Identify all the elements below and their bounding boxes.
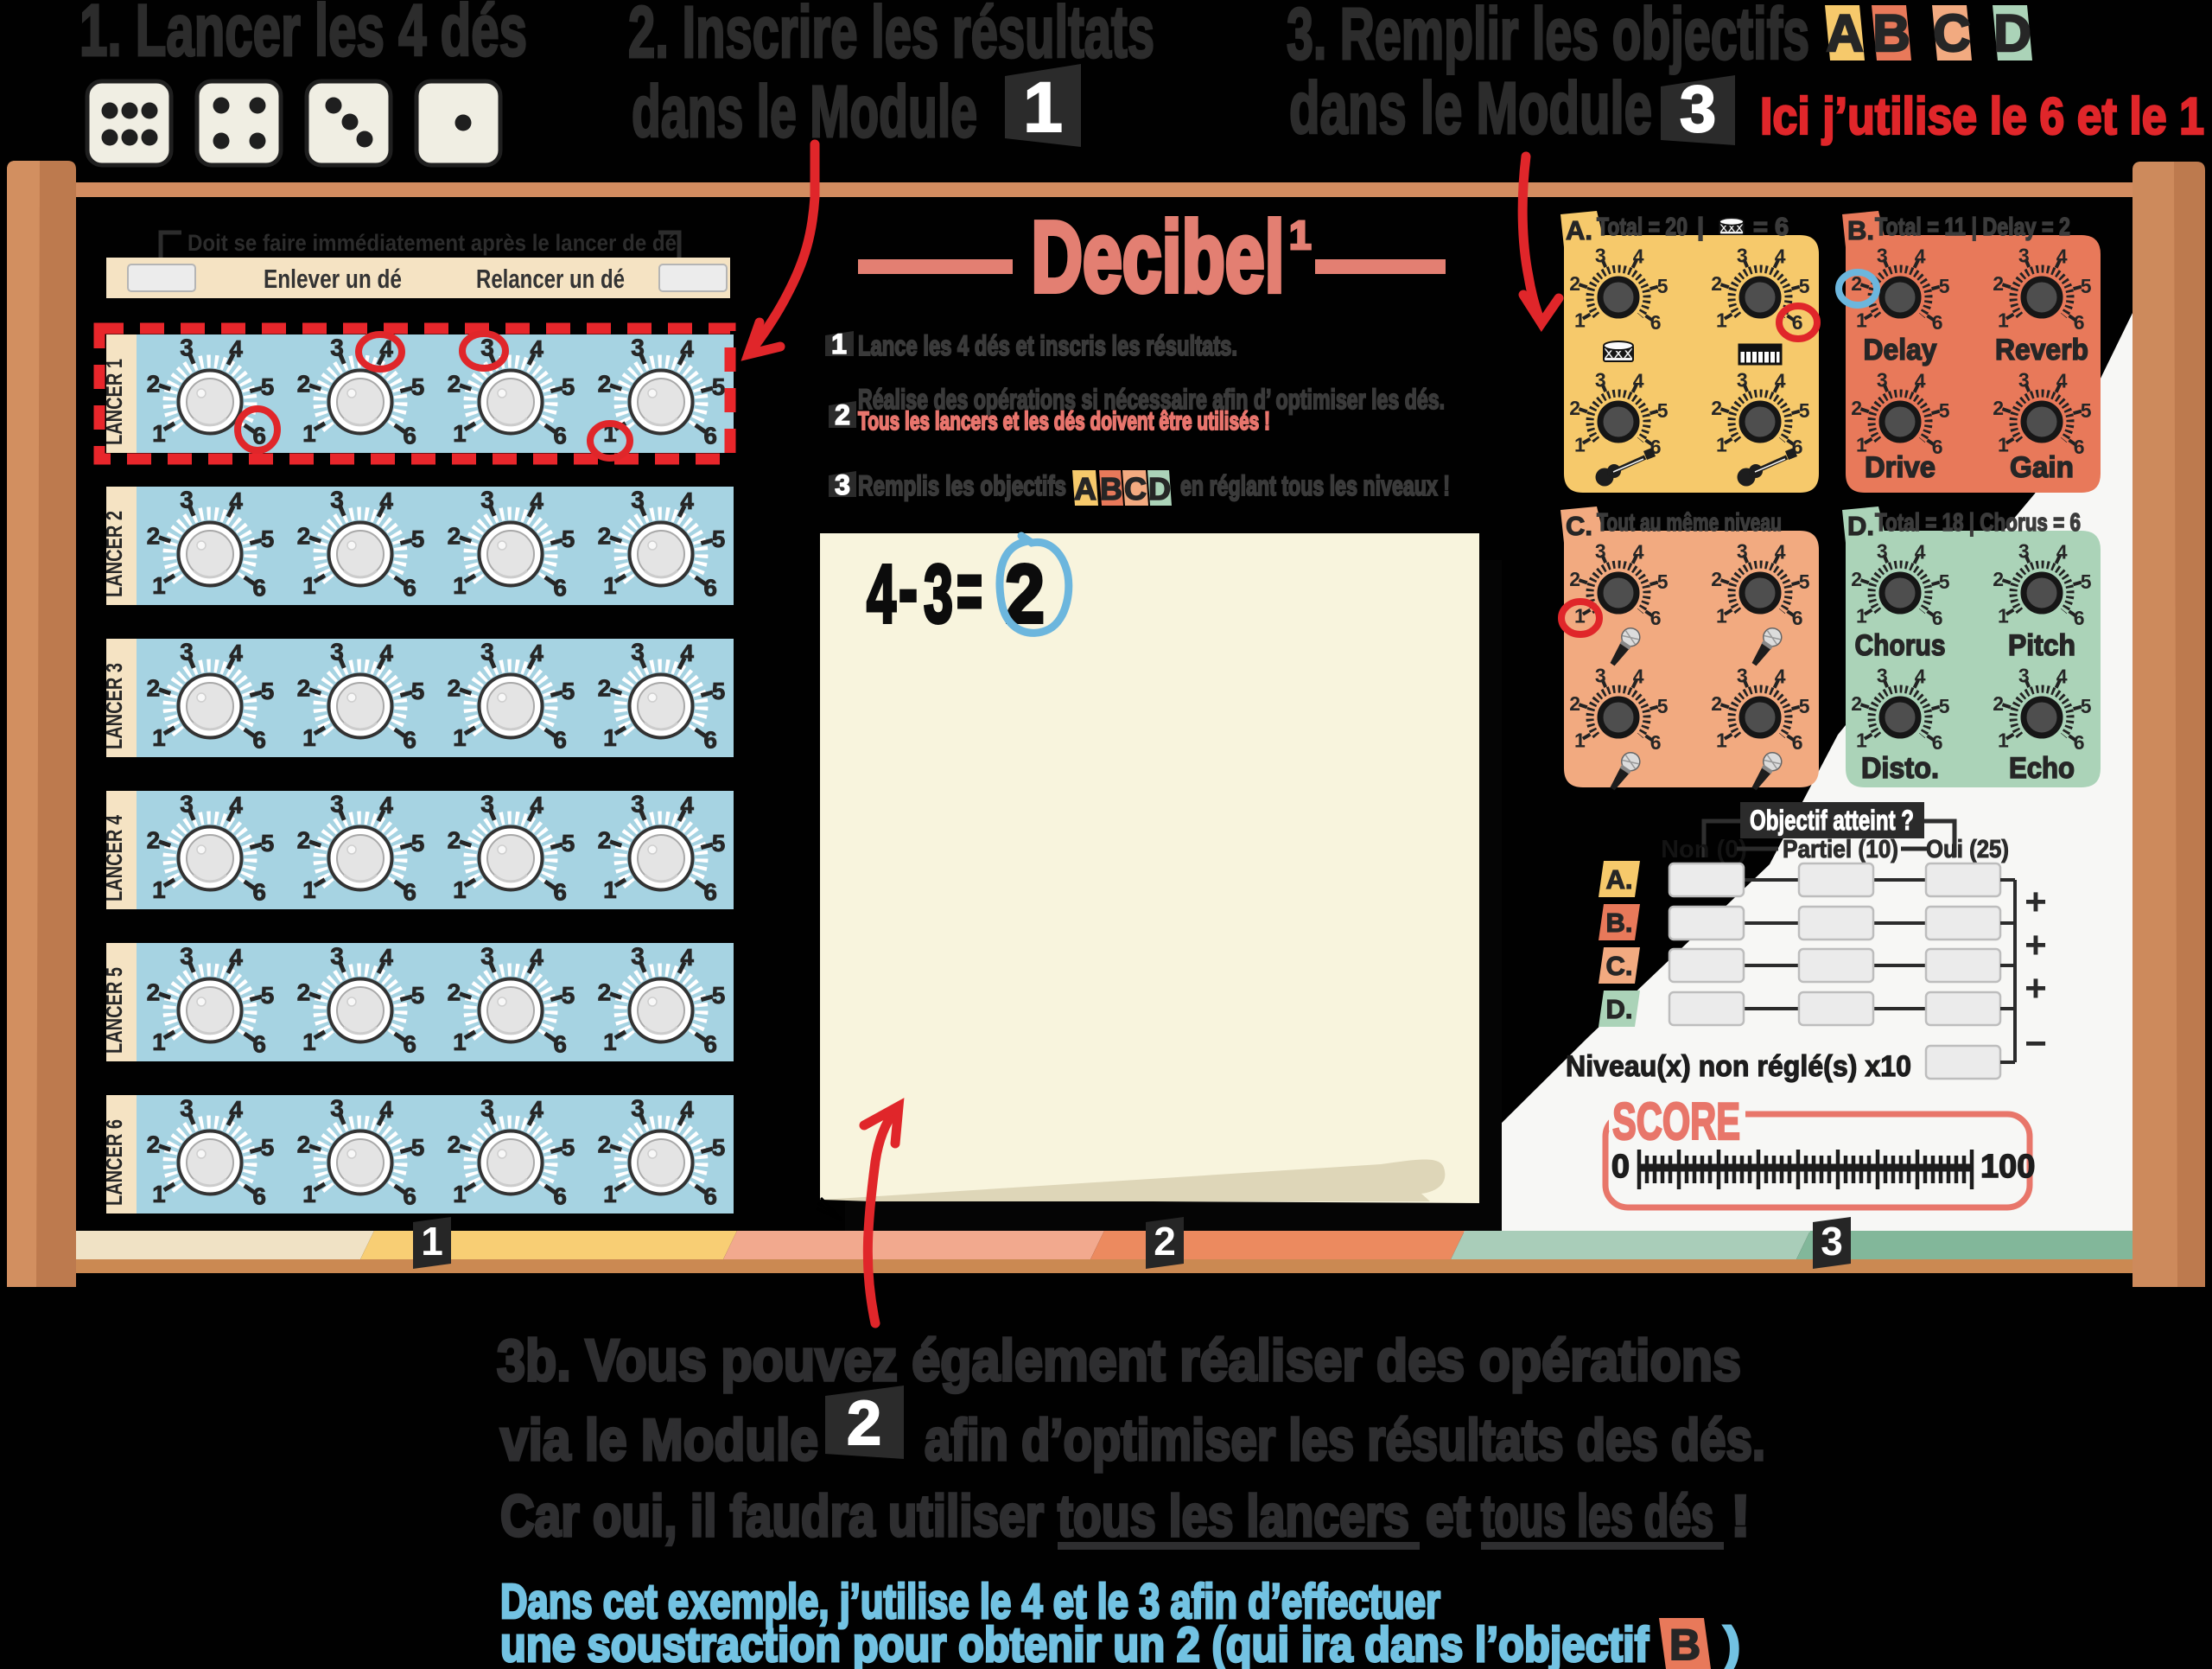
svg-text:tous les lancers: tous les lancers (1058, 1483, 1409, 1549)
svg-text:Niveau(x) non réglé(s) x10: Niveau(x) non réglé(s) x10 (1566, 1050, 1911, 1083)
svg-text:0: 0 (1611, 1149, 1630, 1185)
svg-text:B.: B. (1606, 908, 1633, 938)
svg-text:Total = 11 | Delay = 2: Total = 11 | Delay = 2 (1875, 213, 2070, 241)
svg-text:1: 1 (1289, 213, 1312, 258)
svg-text:1. Lancer les 4 dés: 1. Lancer les 4 dés (79, 0, 527, 71)
svg-text:B: B (1872, 4, 1910, 62)
svg-text:=: = (957, 545, 982, 637)
svg-text:C.: C. (1606, 951, 1633, 981)
svg-text:B: B (1100, 471, 1122, 506)
svg-text:et: et (1426, 1483, 1471, 1549)
svg-text:B.: B. (1847, 215, 1874, 245)
svg-text:en réglant tous les niveaux !: en réglant tous les niveaux ! (1180, 470, 1450, 501)
svg-text:Reverb: Reverb (1995, 334, 2088, 366)
svg-text:A: A (1826, 4, 1863, 62)
svg-text:Car oui, il faudra utiliser: Car oui, il faudra utiliser (500, 1483, 1044, 1549)
svg-text:2: 2 (1154, 1219, 1176, 1264)
svg-text:Tous les lancers et les dés do: Tous les lancers et les dés doivent être… (858, 407, 1270, 436)
svg-text:C: C (1124, 471, 1147, 506)
svg-text:Enlever un dé: Enlever un dé (264, 264, 402, 294)
svg-text:Gain: Gain (2010, 451, 2074, 484)
svg-text:C.: C. (1566, 511, 1592, 541)
svg-text:D: D (1993, 4, 2031, 62)
svg-text:Echo: Echo (2009, 752, 2075, 785)
svg-text:−: − (2024, 1022, 2047, 1065)
svg-text:3: 3 (1680, 73, 1716, 146)
svg-text:afin d’optimiser les résultats: afin d’optimiser les résultats des dés. (925, 1407, 1765, 1473)
svg-text:+: + (2024, 967, 2047, 1010)
svg-text:Ici j’utilise le 6 et le 1: Ici j’utilise le 6 et le 1 (1760, 87, 2204, 145)
svg-text:dans le Module: dans le Module (632, 71, 977, 152)
svg-text:LANCER 4: LANCER 4 (101, 815, 127, 901)
svg-text:Relancer un dé: Relancer un dé (476, 264, 625, 294)
svg-text:Objectif atteint ?: Objectif atteint ? (1750, 805, 1914, 836)
svg-text:A: A (1074, 471, 1096, 506)
svg-text:-: - (899, 543, 918, 635)
svg-text:Oui (25): Oui (25) (1926, 836, 2009, 863)
svg-text:Lance les 4 dés et inscris les: Lance les 4 dés et inscris les résultats… (858, 330, 1237, 361)
svg-text:!: ! (1731, 1483, 1751, 1549)
svg-text:2. Inscrire les résultats: 2. Inscrire les résultats (628, 0, 1154, 73)
svg-text:Delay: Delay (1864, 334, 1937, 366)
svg-text:Chorus: Chorus (1855, 629, 1946, 662)
svg-text:Tout au même niveau: Tout au même niveau (1597, 509, 1782, 537)
svg-text:1: 1 (421, 1219, 443, 1264)
svg-text:2: 2 (835, 399, 850, 430)
svg-text:1: 1 (831, 328, 847, 360)
svg-text:3b. Vous pouvez également réa: 3b. Vous pouvez également réaliser des o… (497, 1328, 1741, 1393)
svg-text:|: | (1697, 213, 1704, 241)
svg-text:A.: A. (1606, 864, 1633, 895)
svg-text:2: 2 (847, 1389, 881, 1458)
svg-text:Drive: Drive (1865, 451, 1935, 484)
svg-text:LANCER 6: LANCER 6 (101, 1119, 127, 1206)
svg-text:Disto.: Disto. (1861, 752, 1939, 785)
svg-text:dans le Module: dans le Module (1289, 67, 1652, 149)
svg-text:): ) (1724, 1617, 1740, 1669)
svg-text:SCORE: SCORE (1612, 1092, 1740, 1150)
svg-text:LANCER 3: LANCER 3 (101, 663, 127, 749)
svg-text:A.: A. (1566, 215, 1592, 245)
svg-text:+: + (2024, 924, 2047, 966)
svg-text:D: D (1148, 471, 1171, 506)
svg-text:LANCER 2: LANCER 2 (101, 511, 127, 597)
svg-text:1: 1 (1023, 68, 1063, 147)
svg-text:Pitch: Pitch (2008, 629, 2075, 662)
svg-text:une soustraction pour obtenir: une soustraction pour obtenir un 2 (qui … (500, 1617, 1649, 1669)
svg-text:Decibel: Decibel (1032, 201, 1285, 313)
svg-text:D.: D. (1847, 511, 1874, 541)
svg-text:Partiel (10): Partiel (10) (1783, 836, 1898, 863)
svg-text:D.: D. (1606, 994, 1633, 1024)
svg-text:= 6: = 6 (1753, 213, 1789, 241)
svg-text:3. Remplir les objectifs: 3. Remplir les objectifs (1287, 0, 1809, 74)
svg-text:4: 4 (867, 548, 896, 640)
svg-text:B: B (1669, 1621, 1700, 1669)
svg-text:LANCER 5: LANCER 5 (101, 967, 127, 1054)
svg-text:Total = 20: Total = 20 (1597, 213, 1688, 241)
svg-text:Doit se faire immédiatement ap: Doit se faire immédiatement après le lan… (188, 230, 677, 256)
svg-text:Remplis les objectifs: Remplis les objectifs (858, 470, 1066, 501)
svg-text:3: 3 (835, 469, 850, 500)
svg-text:Total = 18 | Chorus = 6: Total = 18 | Chorus = 6 (1875, 509, 2081, 537)
svg-text:Non (0): Non (0) (1661, 836, 1747, 863)
svg-text:tous les dés: tous les dés (1481, 1483, 1713, 1549)
svg-text:via le Module: via le Module (500, 1407, 818, 1473)
svg-text:C: C (1933, 4, 1970, 62)
svg-text:+: + (2024, 881, 2047, 923)
svg-text:3: 3 (1821, 1219, 1843, 1264)
svg-text:100: 100 (1980, 1149, 2035, 1185)
svg-text:3: 3 (924, 548, 953, 640)
